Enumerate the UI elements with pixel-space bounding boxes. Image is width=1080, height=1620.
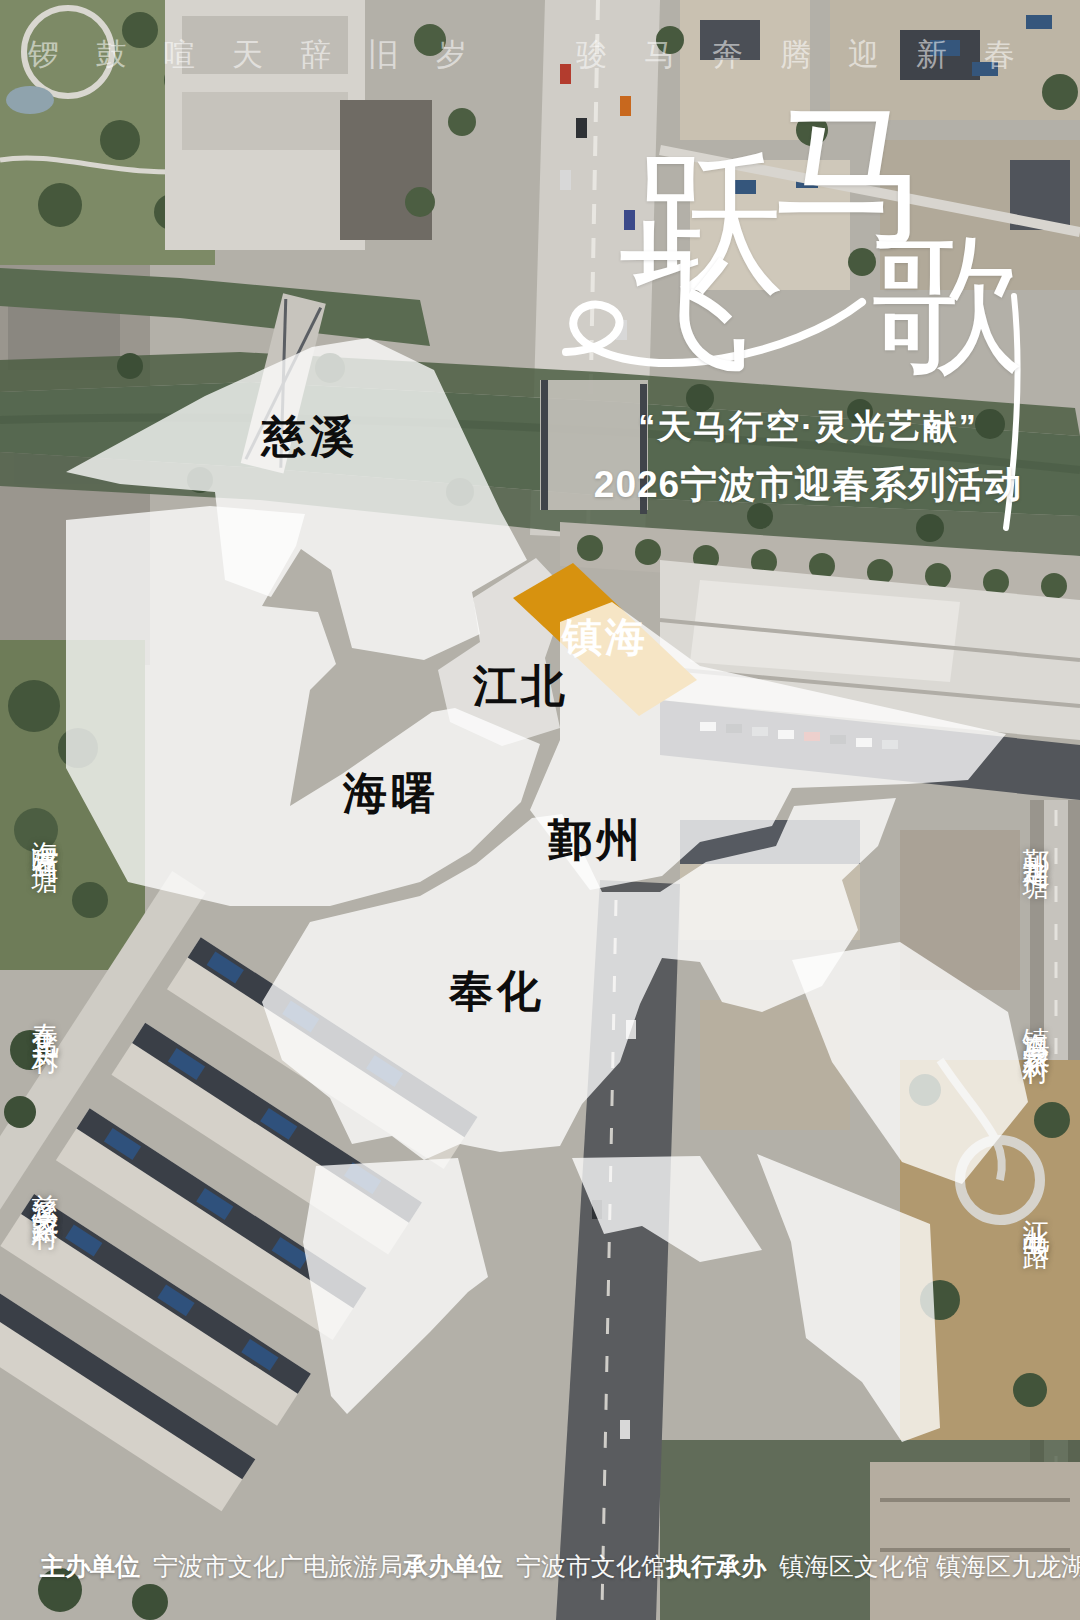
organizer-credits: 主办单位宁波市文化广电旅游局 承办单位宁波市文化馆 执行承办镇海区文化馆 镇海区… xyxy=(0,1550,1080,1583)
site-label-fenghua-matoucun: 奉化马头村 xyxy=(27,1002,63,1032)
region-label-zhenhai: 镇海 xyxy=(562,610,648,665)
top-greeting-banner: 锣鼓喧天辞旧岁 骏马奔腾迎新春 xyxy=(28,34,1052,76)
site-label-zhenhai-majiaqiaocun: 镇海马家桥村 xyxy=(1018,1006,1054,1042)
credit-organizer: 承办单位宁波市文化馆 xyxy=(403,1550,666,1583)
title-char-fei: 飞 xyxy=(618,243,750,375)
site-label-jiangbei-zhongmalu: 江北中马路 xyxy=(1018,1198,1054,1228)
horse-leg-fragment-left xyxy=(303,1158,488,1414)
greeting-right: 骏马奔腾迎新春 xyxy=(576,34,1052,76)
credit-executor-value: 镇海区文化馆 镇海区九龙湖镇文化站 xyxy=(779,1552,1080,1580)
subtitle-slogan: “天马行空·灵光艺献” xyxy=(580,404,1036,450)
region-label-jiangbei: 江北 xyxy=(473,657,569,716)
horse-leg-fragment-right xyxy=(757,1154,940,1442)
site-label-haishu-shimatang: 海曙石马塘 xyxy=(27,820,63,850)
horse-haunch-fragment xyxy=(792,942,1028,1184)
site-label-yinzhou-zoumatang: 鄞州走马塘 xyxy=(1018,826,1054,856)
credit-host: 主办单位宁波市文化广电旅游局 xyxy=(40,1550,403,1583)
credit-host-label: 主办单位 xyxy=(40,1552,140,1580)
credit-host-value: 宁波市文化广电旅游局 xyxy=(153,1552,403,1580)
region-label-haishu: 海曙 xyxy=(343,764,439,823)
horse-leg-fragment-center xyxy=(572,1156,762,1262)
region-label-fenghua: 奉化 xyxy=(449,962,545,1021)
subtitle-event-name: 2026宁波市迎春系列活动 xyxy=(580,460,1036,510)
credit-organizer-value: 宁波市文化馆 xyxy=(516,1552,666,1580)
region-label-yinzhou: 鄞州 xyxy=(548,811,644,870)
title-char-ge: 歌 xyxy=(872,228,1024,380)
greeting-left: 锣鼓喧天辞旧岁 xyxy=(28,34,504,76)
site-label-cixi-majialucun: 慈溪马家路村 xyxy=(27,1172,63,1208)
new-year-event-poster: 锣鼓喧天辞旧岁 骏马奔腾迎新春 跃 马 飞 歌 “天马行空·灵光艺献” 2026… xyxy=(0,0,1080,1620)
credit-organizer-label: 承办单位 xyxy=(403,1552,503,1580)
credit-executor-label: 执行承办 xyxy=(666,1552,766,1580)
credit-executor: 执行承办镇海区文化馆 镇海区九龙湖镇文化站 xyxy=(666,1550,1080,1583)
subtitle-block: “天马行空·灵光艺献” 2026宁波市迎春系列活动 xyxy=(580,404,1036,510)
region-label-cixi: 慈溪 xyxy=(262,407,358,466)
